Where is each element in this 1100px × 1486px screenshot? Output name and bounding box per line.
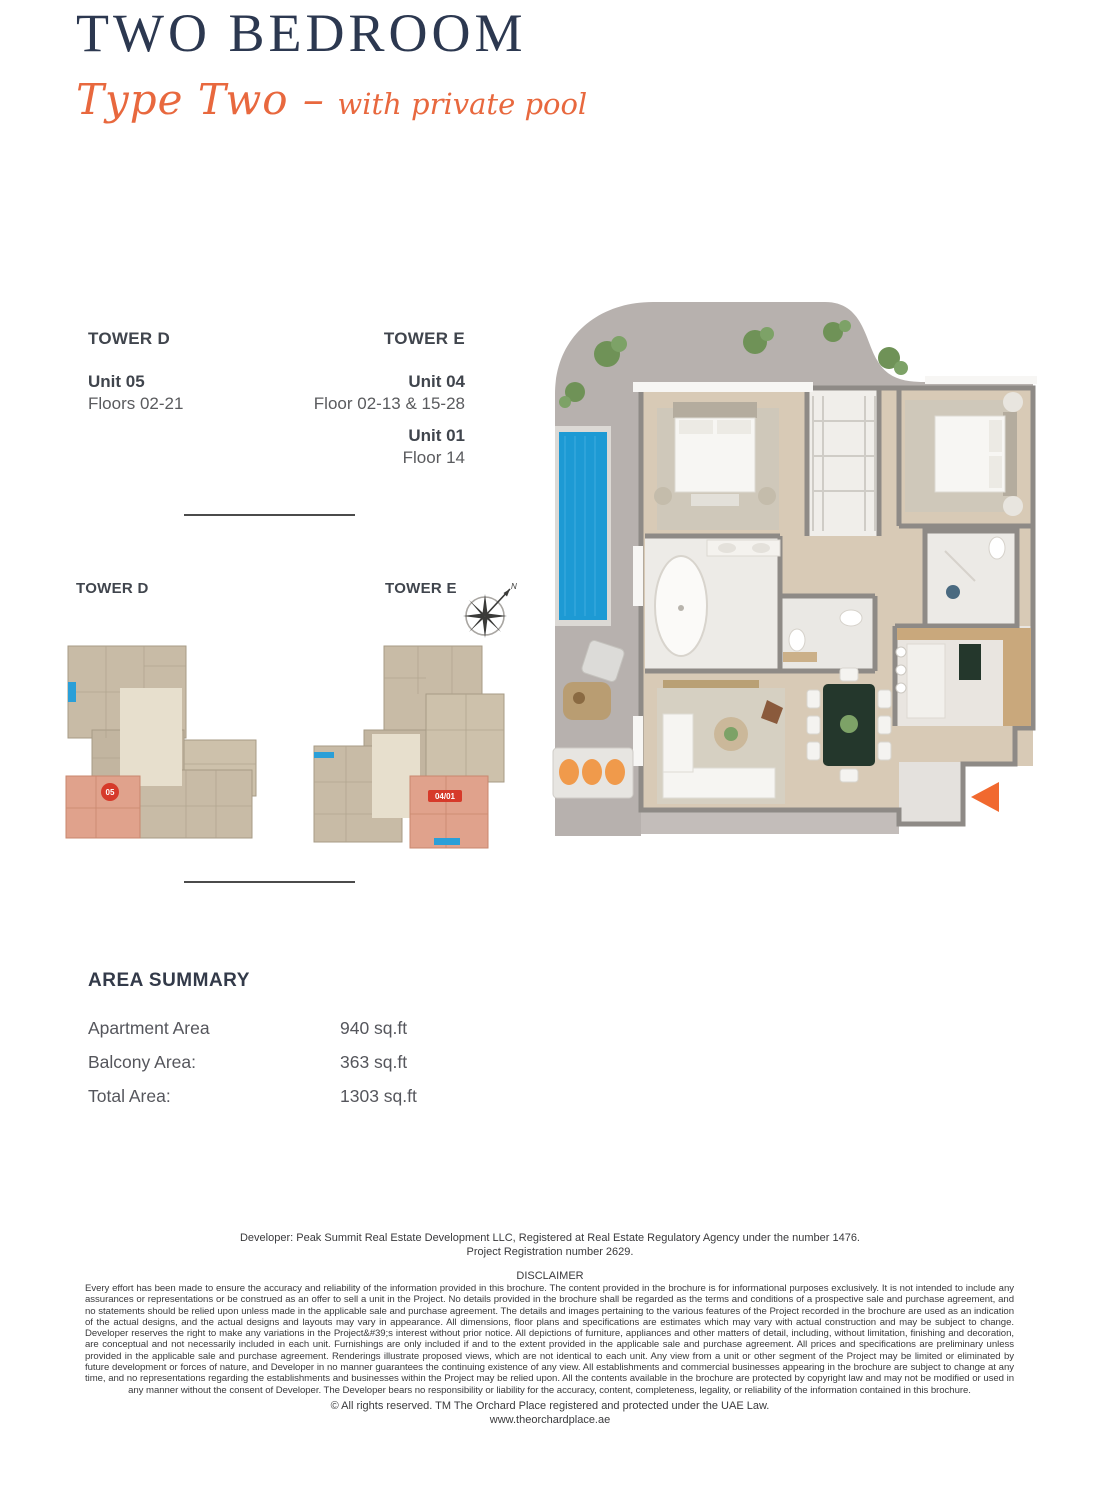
area-row-balcony: Balcony Area: 363 sq.ft bbox=[88, 1052, 518, 1086]
tower-e-heading: TOWER E bbox=[314, 329, 465, 349]
area-value: 940 sq.ft bbox=[340, 1018, 407, 1039]
area-summary-section: AREA SUMMARY Apartment Area 940 sq.ft Ba… bbox=[88, 970, 518, 1120]
tower-e-info: TOWER E Unit 04 Floor 02-13 & 15-28 Unit… bbox=[314, 329, 465, 469]
compass-north-label: N bbox=[511, 582, 517, 591]
disclaimer-body: Every effort has been made to ensure the… bbox=[85, 1283, 1014, 1396]
terrace-bottom bbox=[641, 810, 899, 834]
area-row-apartment: Apartment Area 940 sq.ft bbox=[88, 1018, 518, 1052]
bedroom-2 bbox=[905, 392, 1023, 516]
unit-number: Unit 05 bbox=[88, 371, 183, 393]
bedroom-1 bbox=[654, 402, 779, 530]
title-block: TWO BEDROOM Type Two – with private pool bbox=[76, 4, 587, 124]
developer-line-2: Project Registration number 2629. bbox=[0, 1245, 1100, 1259]
page-title: TWO BEDROOM bbox=[76, 4, 587, 63]
living-room bbox=[657, 680, 785, 804]
divider-line bbox=[184, 514, 355, 516]
area-label: Apartment Area bbox=[88, 1018, 210, 1038]
area-summary-rows: Apartment Area 940 sq.ft Balcony Area: 3… bbox=[88, 1018, 518, 1120]
tower-d-unit-entry: Unit 05 Floors 02-21 bbox=[88, 371, 183, 415]
compass-icon: N bbox=[458, 580, 518, 642]
tower-e-unit-entry: Unit 04 Floor 02-13 & 15-28 bbox=[314, 371, 465, 415]
area-summary-heading: AREA SUMMARY bbox=[88, 970, 518, 992]
tower-e-unit-entry: Unit 01 Floor 14 bbox=[314, 425, 465, 469]
tower-e-keyplan: 04/01 bbox=[306, 634, 510, 854]
area-label: Balcony Area: bbox=[88, 1052, 196, 1072]
disclaimer-heading: DISCLAIMER bbox=[0, 1270, 1100, 1282]
main-floor-plan bbox=[545, 296, 1037, 848]
unit-floors: Floor 14 bbox=[314, 447, 465, 469]
tower-d-heading: TOWER D bbox=[88, 329, 183, 349]
area-row-total: Total Area: 1303 sq.ft bbox=[88, 1086, 518, 1120]
developer-line-1: Developer: Peak Summit Real Estate Devel… bbox=[0, 1231, 1100, 1245]
area-value: 1303 sq.ft bbox=[340, 1086, 417, 1107]
unit-floors: Floor 02-13 & 15-28 bbox=[314, 393, 465, 415]
private-pool bbox=[555, 426, 611, 626]
highlighted-unit-04-01: 04/01 bbox=[410, 776, 488, 848]
unit-floors: Floors 02-21 bbox=[88, 393, 183, 415]
area-label: Total Area: bbox=[88, 1086, 171, 1106]
unit-badge-label: 04/01 bbox=[435, 792, 456, 801]
subtitle-feature: with private pool bbox=[337, 87, 587, 121]
keyplan-pool bbox=[314, 752, 334, 758]
subtitle-type: Type Two – bbox=[76, 75, 325, 124]
brochure-page: { "page": { "title": "TWO BEDROOM", "sub… bbox=[0, 0, 1100, 1486]
keyplan-tower-d-label: TOWER D bbox=[76, 580, 149, 597]
walk-in-closet bbox=[809, 388, 879, 536]
keyplan-pool bbox=[68, 682, 76, 702]
vanity bbox=[707, 540, 780, 556]
unit-badge-label: 05 bbox=[106, 788, 115, 797]
page-subtitle: Type Two – with private pool bbox=[76, 75, 587, 124]
area-value: 363 sq.ft bbox=[340, 1052, 407, 1073]
tower-d-info: TOWER D Unit 05 Floors 02-21 bbox=[88, 329, 183, 415]
divider-line bbox=[184, 881, 355, 883]
tower-d-keyplan: 05 bbox=[36, 630, 268, 848]
highlighted-unit-05: 05 bbox=[66, 776, 140, 838]
keyplan-tower-e-label: TOWER E bbox=[385, 580, 457, 597]
keyplan-pool bbox=[434, 838, 460, 845]
unit-info-section: TOWER D Unit 05 Floors 02-21 TOWER E Uni… bbox=[88, 329, 465, 469]
bathtub bbox=[655, 556, 707, 656]
entry-arrow-icon bbox=[971, 782, 999, 812]
rights-line: © All rights reserved. TM The Orchard Pl… bbox=[0, 1400, 1100, 1412]
website-link: www.theorchardplace.ae bbox=[0, 1414, 1100, 1426]
entry-corridor bbox=[899, 762, 963, 826]
developer-info: Developer: Peak Summit Real Estate Devel… bbox=[0, 1231, 1100, 1259]
unit-number: Unit 04 bbox=[314, 371, 465, 393]
unit-number: Unit 01 bbox=[314, 425, 465, 447]
